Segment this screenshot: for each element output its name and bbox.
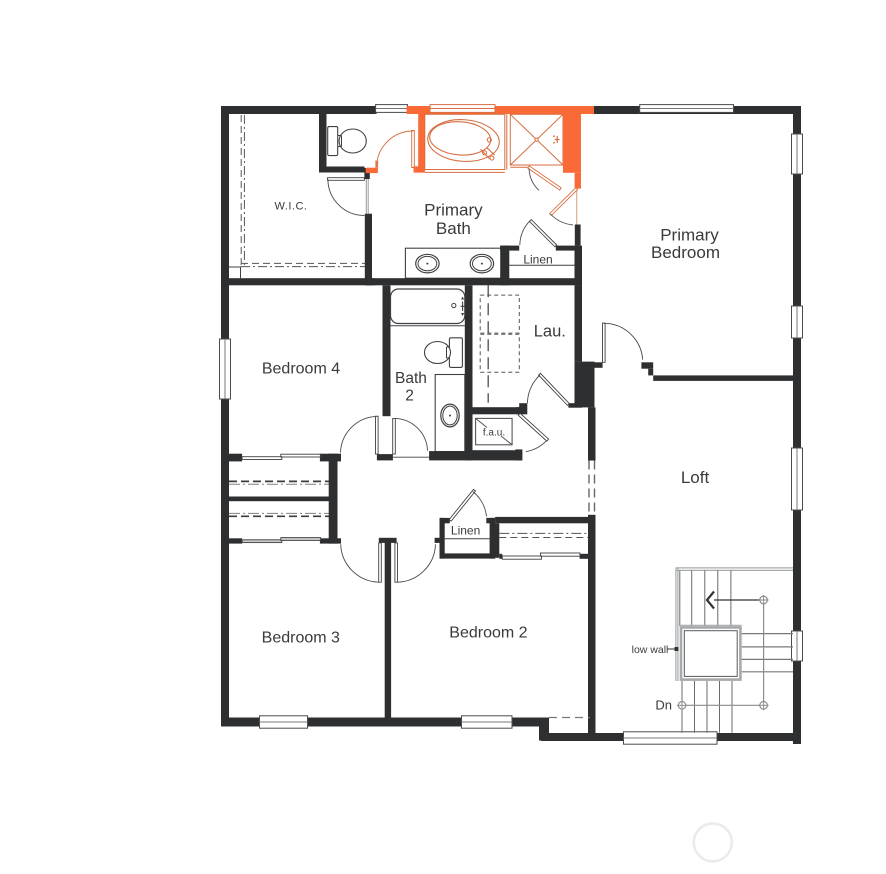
- svg-text:Bedroom 4: Bedroom 4: [262, 361, 340, 378]
- svg-text:Linen: Linen: [523, 253, 552, 267]
- svg-text:Bath: Bath: [395, 370, 427, 387]
- svg-text:f.a.u.: f.a.u.: [483, 428, 505, 439]
- svg-text:Primary: Primary: [424, 201, 483, 220]
- svg-text:2: 2: [405, 388, 414, 405]
- svg-text:Loft: Loft: [681, 468, 710, 487]
- svg-text:Bedroom 2: Bedroom 2: [449, 625, 527, 642]
- svg-text:Lau.: Lau.: [534, 323, 566, 341]
- svg-text:Linen: Linen: [451, 524, 480, 538]
- svg-text:Dn: Dn: [655, 698, 672, 713]
- svg-text:Bedroom 3: Bedroom 3: [262, 630, 340, 647]
- svg-text:W.I.C.: W.I.C.: [275, 201, 308, 213]
- svg-text:Primary: Primary: [660, 226, 719, 245]
- svg-text:low wall: low wall: [632, 644, 669, 656]
- svg-text:Bath: Bath: [436, 219, 471, 238]
- svg-text:Bedroom: Bedroom: [651, 243, 720, 262]
